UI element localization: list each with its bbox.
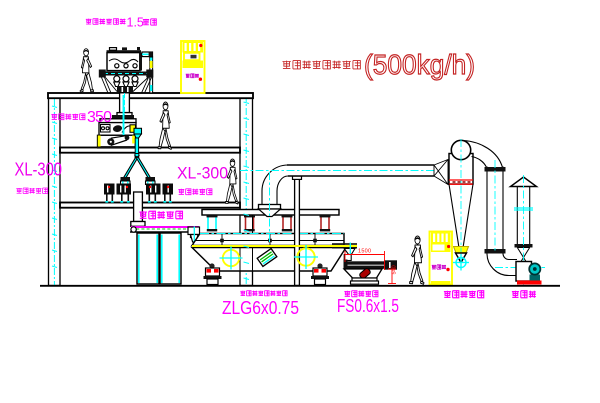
svg-text:540: 540: [392, 265, 398, 274]
svg-text:XL-300: XL-300: [177, 164, 228, 183]
svg-text:350: 350: [87, 109, 112, 126]
svg-text:(500kg/h): (500kg/h): [364, 49, 475, 80]
svg-text:ZLG6x0.75: ZLG6x0.75: [222, 297, 299, 318]
svg-text:XL-300: XL-300: [15, 159, 63, 180]
svg-text:1.5: 1.5: [127, 16, 144, 30]
svg-text:FS0.6x1.5: FS0.6x1.5: [337, 295, 399, 316]
svg-text:1500: 1500: [358, 249, 371, 255]
